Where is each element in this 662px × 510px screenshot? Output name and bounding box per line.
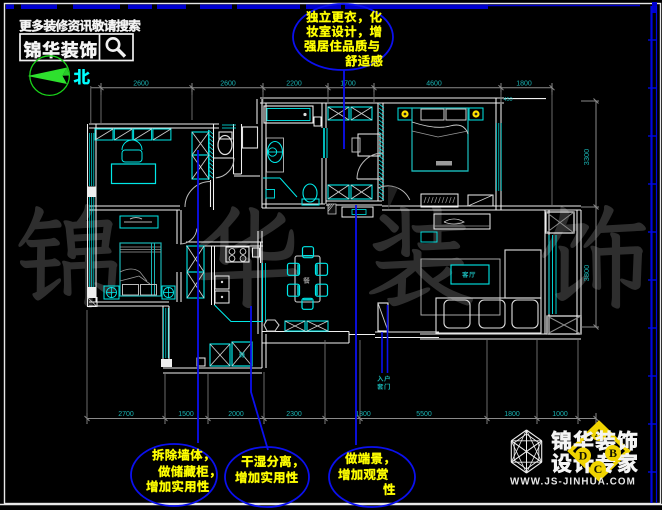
svg-text:WWW.JS-JINHUA.COM: WWW.JS-JINHUA.COM bbox=[510, 477, 636, 488]
svg-text:2000: 2000 bbox=[228, 411, 244, 418]
svg-text:450: 450 bbox=[503, 97, 512, 103]
svg-text:2700: 2700 bbox=[118, 411, 134, 418]
svg-text:2600: 2600 bbox=[220, 81, 236, 88]
svg-text:2200: 2200 bbox=[286, 81, 302, 88]
svg-text:1800: 1800 bbox=[355, 411, 371, 418]
svg-text:3300: 3300 bbox=[582, 149, 591, 166]
svg-text:3800: 3800 bbox=[582, 265, 591, 282]
svg-text:C: C bbox=[594, 462, 603, 476]
svg-text:B: B bbox=[609, 446, 617, 460]
svg-text:1500: 1500 bbox=[178, 411, 194, 418]
svg-text:2300: 2300 bbox=[286, 411, 302, 418]
svg-text:1700: 1700 bbox=[340, 81, 356, 88]
svg-text:D: D bbox=[579, 449, 588, 463]
svg-text:5500: 5500 bbox=[416, 411, 432, 418]
svg-text:1800: 1800 bbox=[504, 411, 520, 418]
svg-text:4600: 4600 bbox=[426, 81, 442, 88]
svg-text:2600: 2600 bbox=[133, 81, 149, 88]
svg-text:1800: 1800 bbox=[516, 81, 532, 88]
svg-text:1000: 1000 bbox=[552, 411, 568, 418]
